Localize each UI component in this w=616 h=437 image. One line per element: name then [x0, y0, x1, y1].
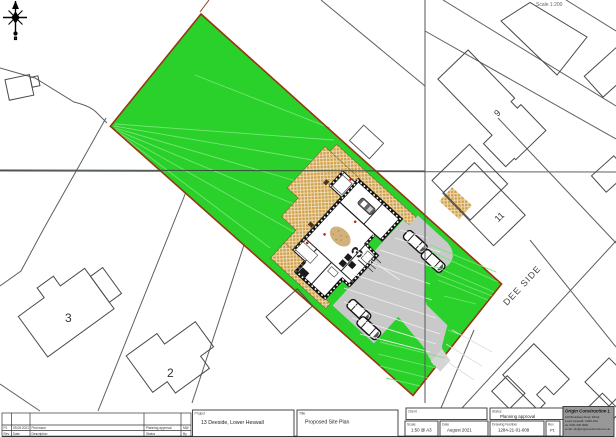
svg-text:Planning approval: Planning approval: [146, 426, 172, 430]
svg-text:Client: Client: [408, 410, 417, 414]
svg-text:Date: Date: [442, 423, 449, 427]
svg-text:Planning approval: Planning approval: [500, 414, 535, 419]
svg-text:P1: P1: [4, 426, 8, 430]
svg-text:Project: Project: [195, 412, 206, 416]
svg-text:1284-21-01-009: 1284-21-01-009: [498, 428, 530, 433]
svg-text:Description: Description: [32, 432, 48, 436]
svg-text:13 Deeside, Lower Heswall: 13 Deeside, Lower Heswall: [201, 420, 264, 426]
svg-text:Proposed Site Plan: Proposed Site Plan: [305, 420, 350, 426]
svg-text:email: info@originconstruction: email: info@originconstruction.co.uk: [565, 427, 611, 431]
svg-text:Rev: Rev: [548, 423, 554, 427]
svg-text:By: By: [183, 432, 187, 436]
svg-text:3: 3: [65, 311, 72, 325]
svg-text:MW: MW: [183, 426, 189, 430]
svg-text:09.08.2021: 09.08.2021: [13, 426, 29, 430]
svg-text:1:50 @ A3: 1:50 @ A3: [411, 428, 432, 433]
svg-text:Origin Construction L: Origin Construction L: [565, 409, 611, 414]
svg-text:Drawing Number: Drawing Number: [492, 423, 518, 427]
svg-text:First issue: First issue: [32, 426, 47, 430]
svg-text:Title: Title: [299, 412, 305, 416]
svg-text:August 2021: August 2021: [447, 428, 472, 433]
svg-text:Date: Date: [13, 432, 20, 436]
svg-text:Scale 1:200: Scale 1:200: [536, 2, 563, 8]
svg-text:2: 2: [167, 366, 174, 380]
svg-text:Status: Status: [146, 432, 155, 436]
svg-text:P1: P1: [550, 428, 556, 433]
svg-text:Rev: Rev: [4, 432, 10, 436]
svg-text:Scale: Scale: [407, 423, 416, 427]
svg-text:Status: Status: [492, 410, 502, 414]
